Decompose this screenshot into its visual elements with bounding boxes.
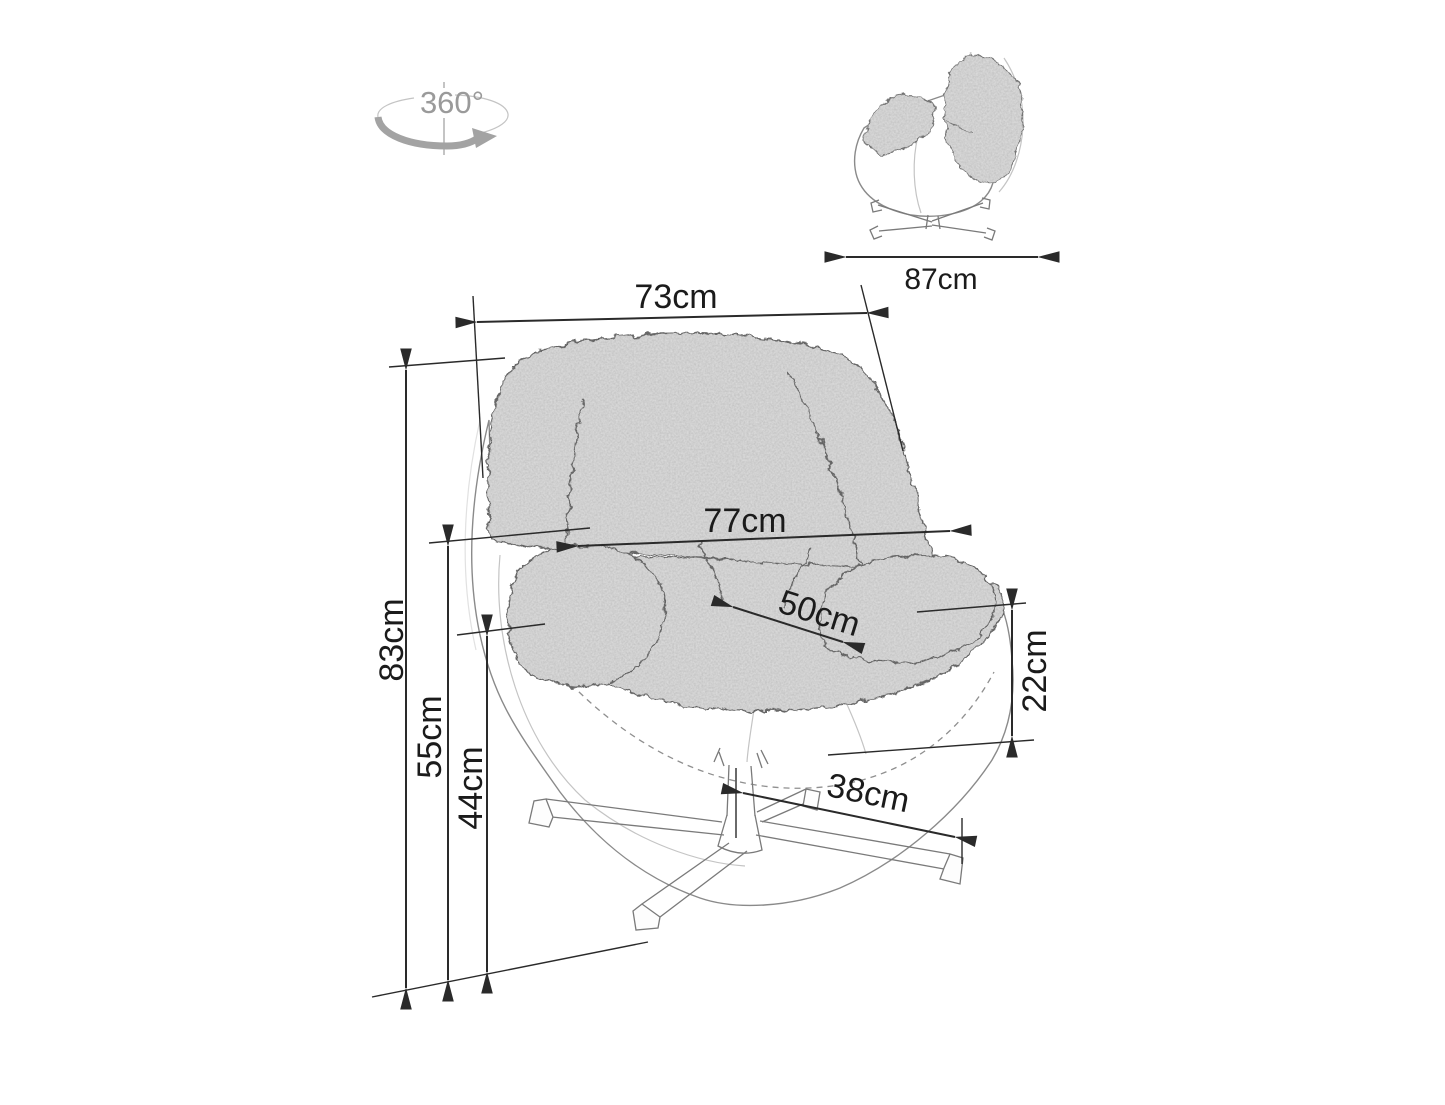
ground-line (372, 942, 648, 997)
side-cushions (865, 55, 1023, 184)
overall-width-label: 77cm (703, 502, 786, 540)
rotation-degrees-label: 360° (420, 85, 484, 120)
dimension-44cm: 44cm (452, 624, 545, 972)
depth-dimension-label: 87cm (904, 263, 977, 296)
rotation-arrow-arc (378, 117, 478, 146)
swivel-base (529, 748, 963, 930)
rotation-360-icon: 360° (378, 82, 508, 155)
back-width-label: 73cm (634, 278, 717, 316)
base-cone (718, 815, 762, 853)
chair-dimension-diagram: 360° 87cm (0, 0, 1445, 1105)
seat-to-shell-label: 22cm (1016, 629, 1054, 712)
armrest-height-label: 55cm (411, 695, 449, 778)
base-foot-right (940, 854, 963, 884)
rotation-arrowhead-icon (472, 128, 497, 148)
main-chair-sketch (465, 333, 1013, 930)
base-foot-front (633, 904, 660, 930)
diagram-svg: 360° 87cm (0, 0, 1445, 1105)
base-foot-left (529, 799, 553, 827)
dimension-87cm: 87cm (846, 257, 1038, 296)
side-view-chair-sketch: 87cm (846, 55, 1038, 296)
seat-height-label: 44cm (452, 746, 490, 829)
overall-height-label: 83cm (373, 598, 411, 681)
dimension-38cm: 38cm (736, 766, 962, 864)
